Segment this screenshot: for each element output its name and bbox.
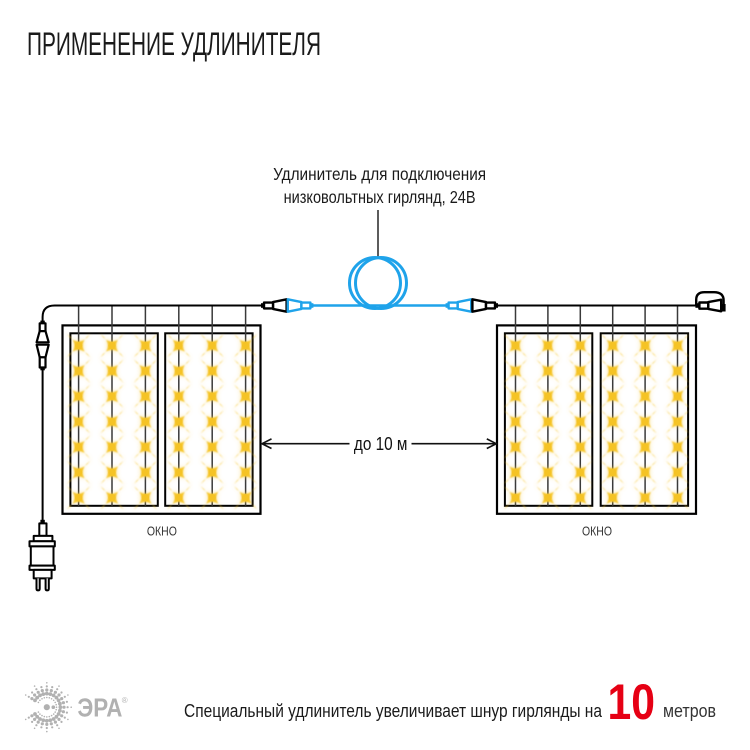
svg-text:ОКНО: ОКНО xyxy=(582,525,612,539)
svg-text:10: 10 xyxy=(608,674,656,730)
svg-text:ПРИМЕНЕНИЕ УДЛИНИТЕЛЯ: ПРИМЕНЕНИЕ УДЛИНИТЕЛЯ xyxy=(27,26,321,62)
svg-text:®: ® xyxy=(122,696,128,705)
svg-text:метров: метров xyxy=(663,701,716,721)
svg-text:Специальный удлинитель увеличи: Специальный удлинитель увеличивает шнур … xyxy=(184,701,603,721)
svg-text:ЭРА: ЭРА xyxy=(77,692,122,722)
svg-text:ОКНО: ОКНО xyxy=(147,525,177,539)
svg-text:низковольтных гирлянд, 24В: низковольтных гирлянд, 24В xyxy=(284,187,476,207)
svg-text:до 10 м: до 10 м xyxy=(354,433,408,454)
svg-text:Удлинитель для подключения: Удлинитель для подключения xyxy=(273,164,486,184)
